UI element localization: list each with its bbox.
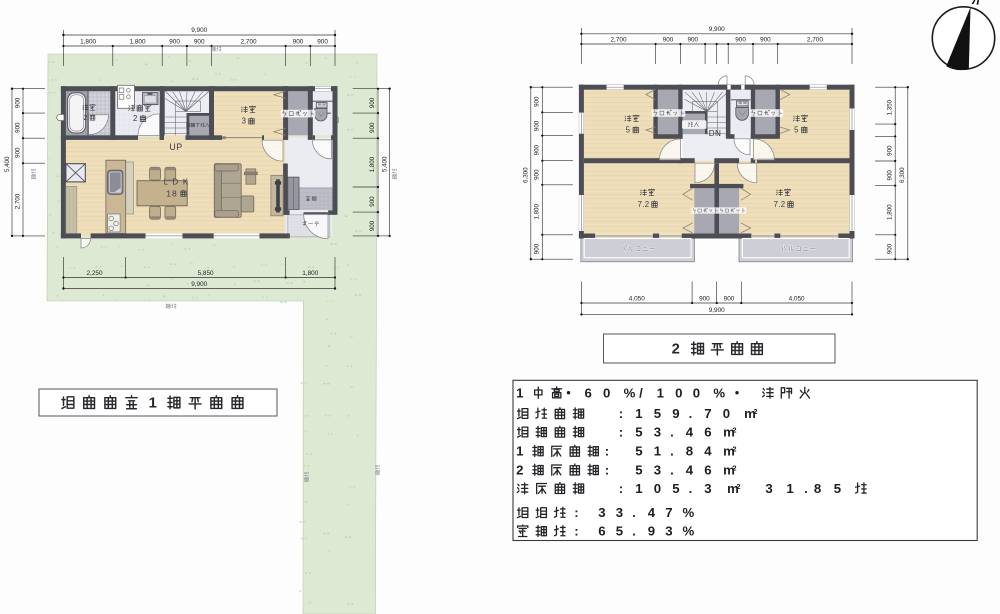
svg-text:1,800: 1,800 bbox=[302, 270, 318, 277]
svg-text:2: 2 bbox=[516, 463, 523, 478]
svg-text:3: 3 bbox=[654, 463, 661, 478]
svg-text:6: 6 bbox=[585, 385, 592, 400]
svg-text:900: 900 bbox=[886, 170, 893, 181]
svg-text:2: 2 bbox=[133, 114, 137, 123]
svg-text:900: 900 bbox=[14, 122, 21, 133]
svg-text:2,700: 2,700 bbox=[241, 39, 257, 46]
svg-text:0: 0 bbox=[693, 385, 700, 400]
svg-text:900: 900 bbox=[369, 97, 376, 108]
svg-text:2: 2 bbox=[732, 464, 736, 473]
svg-text:3: 3 bbox=[765, 481, 772, 496]
svg-text:5: 5 bbox=[626, 125, 631, 134]
svg-text:/: / bbox=[639, 385, 643, 400]
svg-text:900: 900 bbox=[886, 243, 893, 254]
svg-text:900: 900 bbox=[534, 169, 541, 180]
svg-text:8: 8 bbox=[814, 481, 821, 496]
svg-text:1: 1 bbox=[635, 406, 642, 421]
svg-text:2: 2 bbox=[84, 115, 88, 122]
svg-text:5: 5 bbox=[635, 444, 642, 459]
svg-text:5: 5 bbox=[672, 481, 679, 496]
svg-text:900: 900 bbox=[663, 37, 674, 44]
svg-text::: : bbox=[619, 425, 623, 440]
svg-text:9,900: 9,900 bbox=[191, 27, 207, 34]
svg-text:7: 7 bbox=[704, 406, 711, 421]
svg-text:900: 900 bbox=[886, 145, 893, 156]
svg-text:1,800: 1,800 bbox=[886, 204, 893, 220]
svg-text:.: . bbox=[689, 406, 693, 421]
svg-text::: : bbox=[574, 524, 578, 539]
svg-text:.: . bbox=[632, 505, 636, 520]
svg-text:5: 5 bbox=[654, 406, 661, 421]
svg-text:5,400: 5,400 bbox=[381, 156, 388, 172]
svg-text:900: 900 bbox=[369, 122, 376, 133]
svg-text:5: 5 bbox=[834, 481, 841, 496]
svg-text:2: 2 bbox=[736, 482, 740, 491]
svg-text:6: 6 bbox=[704, 425, 711, 440]
svg-text:UP: UP bbox=[169, 142, 182, 152]
svg-text:1,800: 1,800 bbox=[80, 39, 96, 46]
svg-text:900: 900 bbox=[369, 196, 376, 207]
svg-text:1: 1 bbox=[635, 481, 642, 496]
svg-text:5,400: 5,400 bbox=[4, 156, 11, 172]
svg-text::: : bbox=[619, 481, 623, 496]
svg-text:1: 1 bbox=[654, 444, 661, 459]
svg-text:5,850: 5,850 bbox=[198, 270, 214, 277]
svg-text:900: 900 bbox=[687, 37, 698, 44]
svg-text:7.2: 7.2 bbox=[774, 200, 786, 209]
svg-text:0: 0 bbox=[603, 385, 610, 400]
svg-text:3: 3 bbox=[665, 524, 672, 539]
svg-text:4: 4 bbox=[686, 463, 694, 478]
svg-text:0: 0 bbox=[654, 481, 661, 496]
svg-text:900: 900 bbox=[760, 37, 771, 44]
svg-text:900: 900 bbox=[15, 147, 22, 158]
svg-text:0: 0 bbox=[675, 385, 682, 400]
svg-text:1: 1 bbox=[786, 481, 793, 496]
svg-text:900: 900 bbox=[194, 39, 205, 46]
svg-text:.: . bbox=[689, 481, 693, 496]
svg-text:9: 9 bbox=[672, 406, 679, 421]
svg-text:9: 9 bbox=[648, 524, 655, 539]
svg-text:7: 7 bbox=[665, 505, 672, 520]
svg-text:3: 3 bbox=[242, 117, 246, 126]
svg-text::: : bbox=[605, 444, 609, 459]
svg-text:1: 1 bbox=[516, 444, 523, 459]
svg-text:4,050: 4,050 bbox=[629, 296, 645, 303]
svg-text:9,900: 9,900 bbox=[709, 307, 725, 314]
svg-text:900: 900 bbox=[534, 243, 541, 254]
svg-text:1,350: 1,350 bbox=[886, 99, 893, 115]
svg-text:3: 3 bbox=[704, 481, 711, 496]
svg-text::: : bbox=[605, 463, 609, 478]
svg-text:2: 2 bbox=[732, 445, 736, 454]
svg-text:2,250: 2,250 bbox=[87, 270, 103, 277]
svg-text:1: 1 bbox=[516, 385, 523, 400]
svg-text:8: 8 bbox=[686, 444, 693, 459]
svg-text:.: . bbox=[670, 463, 674, 478]
svg-text:900: 900 bbox=[699, 296, 710, 303]
svg-text:900: 900 bbox=[169, 39, 180, 46]
svg-text:5: 5 bbox=[635, 463, 642, 478]
svg-text:2,700: 2,700 bbox=[807, 37, 823, 44]
svg-text:18: 18 bbox=[166, 189, 177, 199]
svg-text:5: 5 bbox=[794, 125, 799, 134]
svg-text:2: 2 bbox=[732, 426, 736, 435]
svg-text:.: . bbox=[670, 444, 674, 459]
svg-text:900: 900 bbox=[534, 120, 541, 131]
svg-text:0: 0 bbox=[723, 406, 730, 421]
svg-text:3: 3 bbox=[654, 425, 661, 440]
svg-text:900: 900 bbox=[15, 97, 22, 108]
svg-text::: : bbox=[574, 505, 578, 520]
svg-text:%: % bbox=[683, 524, 695, 539]
svg-text:3: 3 bbox=[616, 505, 623, 520]
svg-text:7.2: 7.2 bbox=[638, 200, 650, 209]
svg-text:6: 6 bbox=[598, 524, 605, 539]
svg-text:4: 4 bbox=[686, 425, 694, 440]
svg-text:1,800: 1,800 bbox=[130, 39, 146, 46]
svg-text:.: . bbox=[804, 481, 808, 496]
svg-text::: : bbox=[619, 406, 623, 421]
svg-text:9,900: 9,900 bbox=[709, 26, 725, 33]
svg-text:3: 3 bbox=[598, 505, 605, 520]
svg-text:900: 900 bbox=[317, 39, 328, 46]
svg-text:4,050: 4,050 bbox=[789, 296, 805, 303]
svg-text:900: 900 bbox=[534, 96, 541, 107]
svg-text:4: 4 bbox=[648, 505, 656, 520]
svg-text:%: % bbox=[624, 385, 636, 400]
svg-text:4: 4 bbox=[704, 444, 712, 459]
svg-text:2: 2 bbox=[753, 407, 757, 416]
svg-text:6,300: 6,300 bbox=[523, 167, 530, 183]
svg-text:2: 2 bbox=[672, 342, 680, 358]
svg-text:6: 6 bbox=[704, 463, 711, 478]
svg-text:1: 1 bbox=[657, 385, 664, 400]
svg-text:900: 900 bbox=[534, 144, 541, 155]
svg-text:%: % bbox=[713, 385, 725, 400]
svg-text:.: . bbox=[632, 524, 636, 539]
svg-text:5: 5 bbox=[635, 425, 642, 440]
svg-text:2,700: 2,700 bbox=[611, 37, 627, 44]
svg-text:1,800: 1,800 bbox=[369, 156, 376, 172]
svg-text:2,700: 2,700 bbox=[15, 193, 22, 209]
svg-text:900: 900 bbox=[369, 220, 376, 231]
svg-text:900: 900 bbox=[724, 296, 735, 303]
svg-text:5: 5 bbox=[616, 524, 623, 539]
svg-text:1: 1 bbox=[149, 396, 157, 412]
svg-text:6,300: 6,300 bbox=[899, 167, 906, 183]
svg-text:900: 900 bbox=[293, 39, 304, 46]
svg-text:1,800: 1,800 bbox=[534, 203, 541, 219]
svg-text:9,900: 9,900 bbox=[191, 281, 207, 288]
svg-text:900: 900 bbox=[735, 37, 746, 44]
svg-text:%: % bbox=[683, 505, 695, 520]
svg-text:DN: DN bbox=[709, 129, 721, 138]
svg-text:L D K: L D K bbox=[164, 177, 190, 186]
svg-text:.: . bbox=[670, 425, 674, 440]
